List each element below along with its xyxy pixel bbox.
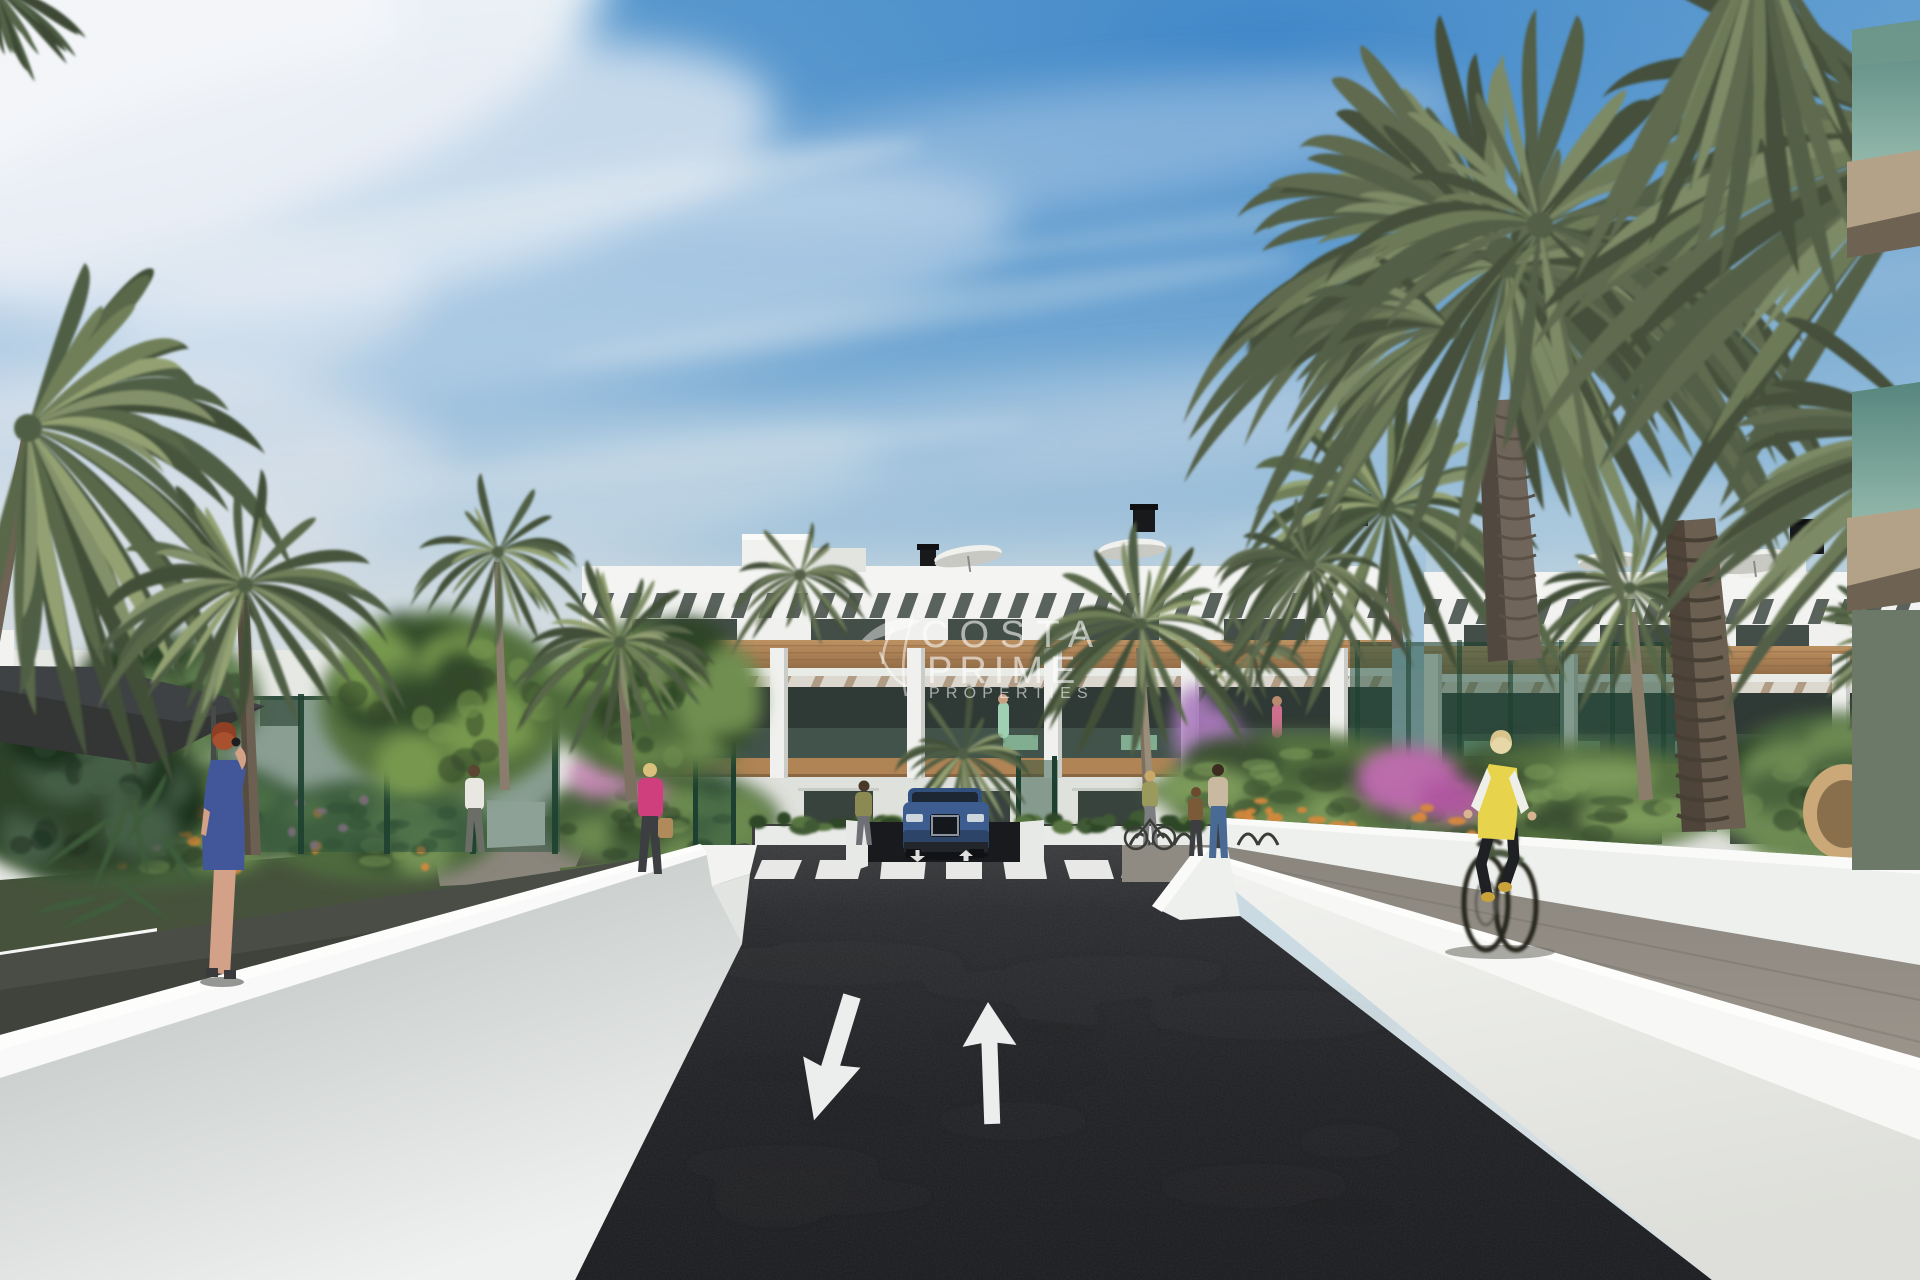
- svg-text:PROPERTIES: PROPERTIES: [929, 685, 1094, 702]
